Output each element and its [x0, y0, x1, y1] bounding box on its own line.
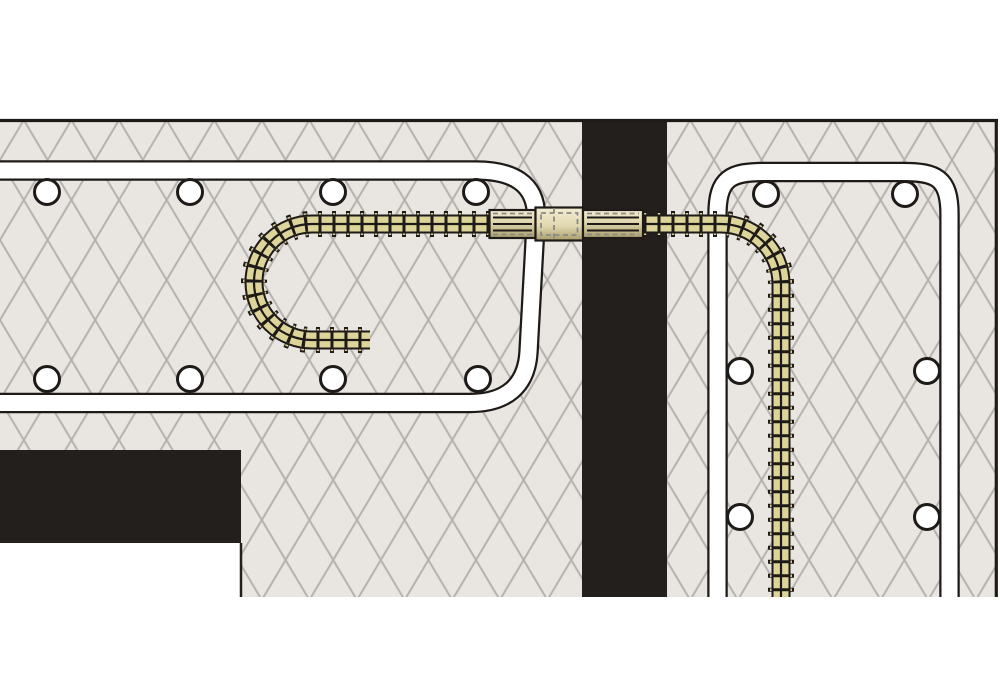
rebar-cross-section-circle [466, 367, 491, 392]
rebar-cross-section-circle [915, 505, 940, 530]
rebar-cross-section-circle [728, 505, 753, 530]
rebar-cross-section-circle [35, 180, 60, 205]
coupler-right-spline [583, 210, 643, 238]
dark-block [0, 450, 241, 543]
coupler-sleeve [536, 208, 584, 241]
illustration-stage [0, 0, 1000, 700]
joint-band [582, 122, 667, 597]
rebar-cross-section-circle [178, 367, 203, 392]
rebar-coupler-detail-drawing [0, 0, 1000, 700]
rebar-cross-section-circle [728, 359, 753, 384]
rebar-cross-section-circle [915, 359, 940, 384]
rebar-cross-section-circle [35, 367, 60, 392]
rebar-cross-section-circle [321, 367, 346, 392]
mechanical-coupler [490, 208, 644, 241]
coupler-left-spline [490, 210, 536, 238]
rebar-cross-section-circle [321, 180, 346, 205]
rebar-cross-section-circle [754, 182, 779, 207]
rebar-cross-section-circle [464, 180, 489, 205]
rebar-cross-section-circle [178, 180, 203, 205]
rebar-cross-section-circle [893, 182, 918, 207]
